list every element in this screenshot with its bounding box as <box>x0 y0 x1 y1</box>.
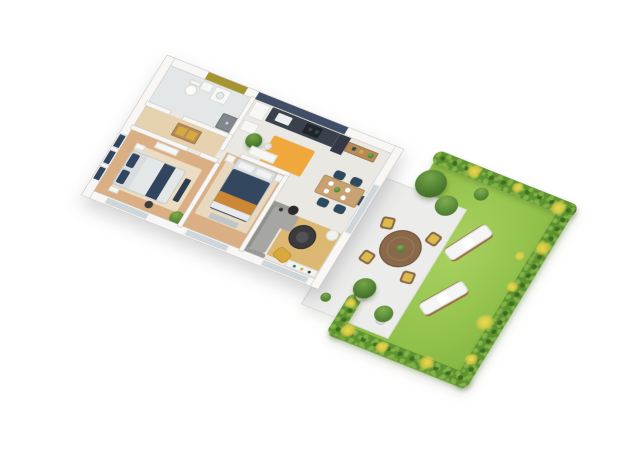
floor-plan-image <box>0 0 640 470</box>
